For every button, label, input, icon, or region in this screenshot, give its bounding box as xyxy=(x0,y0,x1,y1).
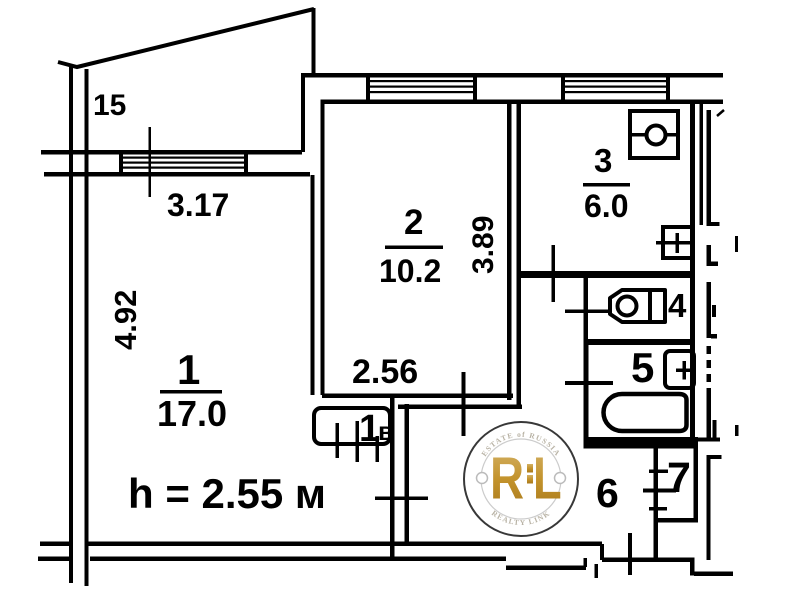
svg-text:10.2: 10.2 xyxy=(379,253,441,289)
svg-text:в: в xyxy=(378,416,394,446)
svg-text:3.89: 3.89 xyxy=(467,216,500,274)
svg-text:3.17: 3.17 xyxy=(167,187,229,223)
svg-text:1: 1 xyxy=(177,346,200,393)
svg-text:7: 7 xyxy=(667,454,691,502)
svg-text:1: 1 xyxy=(359,408,380,450)
svg-text:6: 6 xyxy=(596,470,619,516)
svg-text:15: 15 xyxy=(93,89,126,122)
svg-text:5: 5 xyxy=(631,344,654,391)
svg-text:4: 4 xyxy=(668,287,687,324)
svg-text:3: 3 xyxy=(594,142,612,179)
svg-text:h = 2.55 м: h = 2.55 м xyxy=(128,470,326,517)
svg-text:4.92: 4.92 xyxy=(108,290,143,350)
svg-text:17.0: 17.0 xyxy=(157,393,227,434)
svg-text:2.56: 2.56 xyxy=(352,353,418,391)
svg-text:6.0: 6.0 xyxy=(584,188,628,224)
svg-text:2: 2 xyxy=(404,203,423,242)
